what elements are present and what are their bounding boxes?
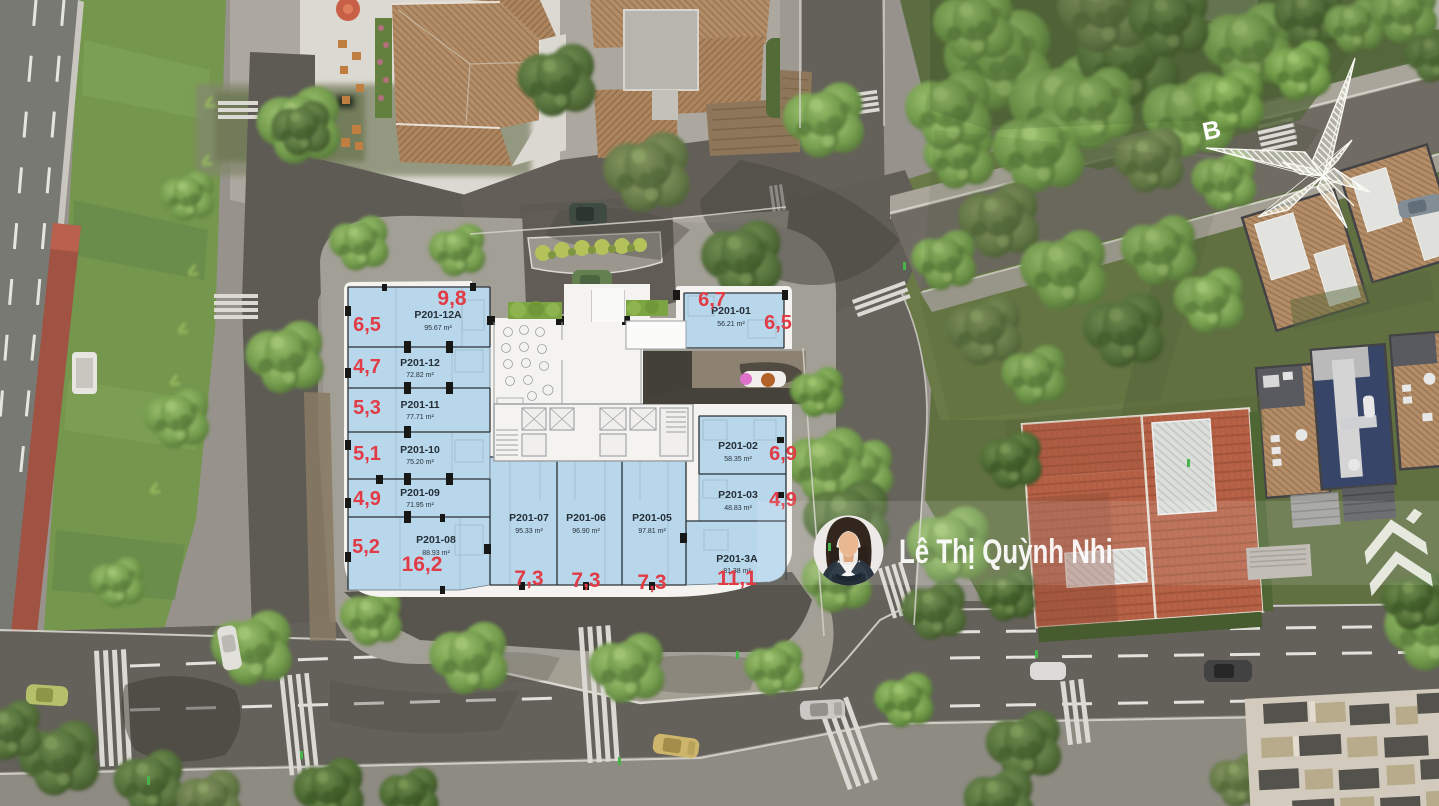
svg-text:Lê Thị Quỳnh Nhi: Lê Thị Quỳnh Nhi — [899, 534, 1113, 571]
